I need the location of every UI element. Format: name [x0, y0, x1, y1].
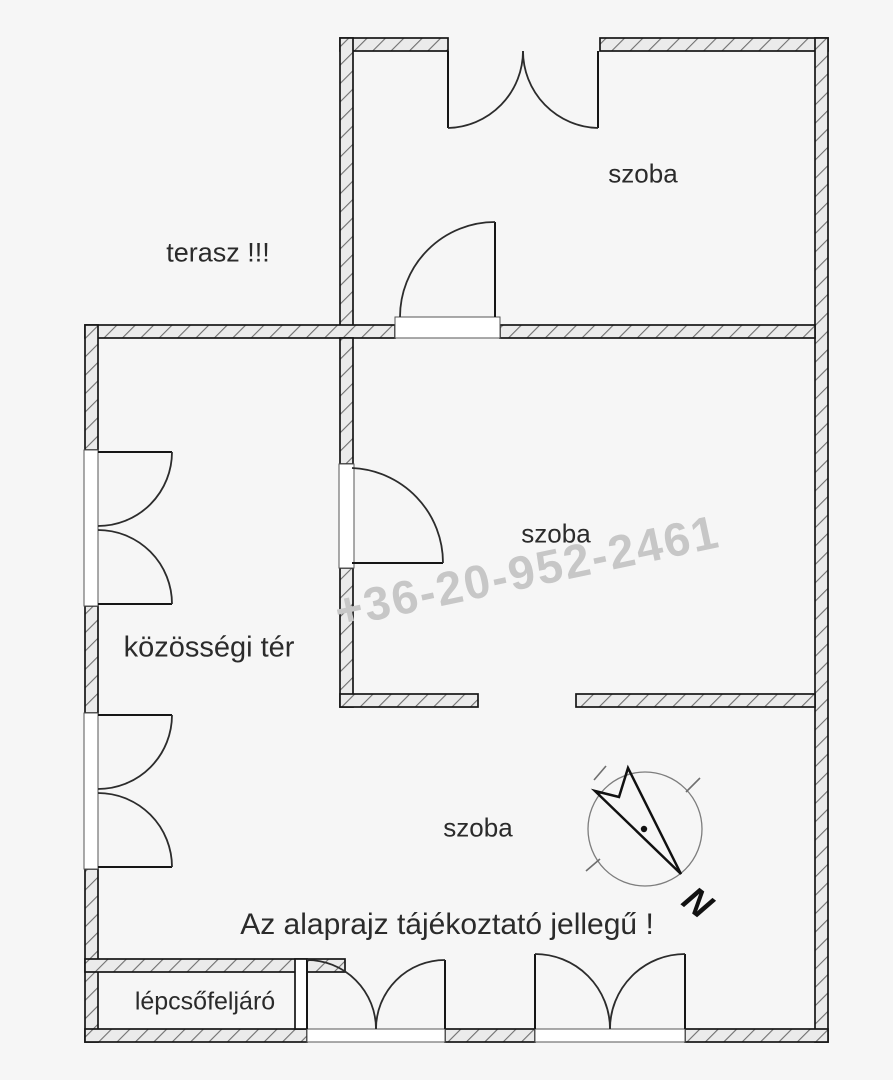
- compass-icon: N: [586, 766, 721, 927]
- room-label-terasz: terasz !!!: [166, 238, 270, 269]
- north-label: N: [675, 878, 722, 927]
- staircase-partition-wall: [295, 959, 307, 1029]
- room-label-top-szoba: szoba: [608, 159, 677, 190]
- room-label-kozossegi-ter: közösségi tér: [124, 632, 295, 665]
- floorplan-page: N szoba terasz !!! szoba közösségi tér s…: [0, 0, 893, 1080]
- north-needle: [595, 768, 681, 874]
- room-label-middle-szoba: szoba: [521, 519, 590, 550]
- room-label-lepcsofeljaro: lépcsőfeljáró: [135, 988, 275, 1017]
- room-label-bottom-szoba: szoba: [443, 813, 512, 844]
- disclaimer-text: Az alaprajz tájékoztató jellegű !: [240, 908, 654, 942]
